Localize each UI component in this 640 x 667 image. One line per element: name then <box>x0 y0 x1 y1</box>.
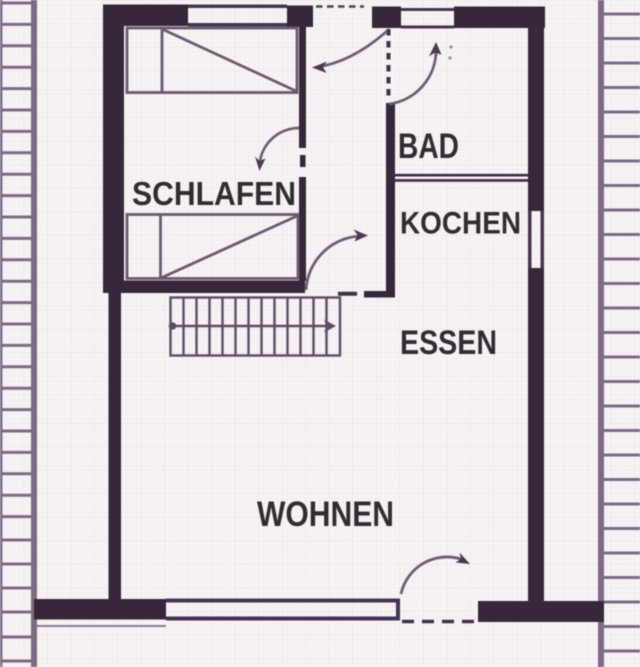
svg-text:ESSEN: ESSEN <box>400 324 497 362</box>
svg-text:BAD: BAD <box>398 127 459 166</box>
svg-text:KOCHEN: KOCHEN <box>400 205 521 241</box>
svg-text:SCHLAFEN: SCHLAFEN <box>132 175 296 212</box>
svg-text:WOHNEN: WOHNEN <box>257 495 394 534</box>
